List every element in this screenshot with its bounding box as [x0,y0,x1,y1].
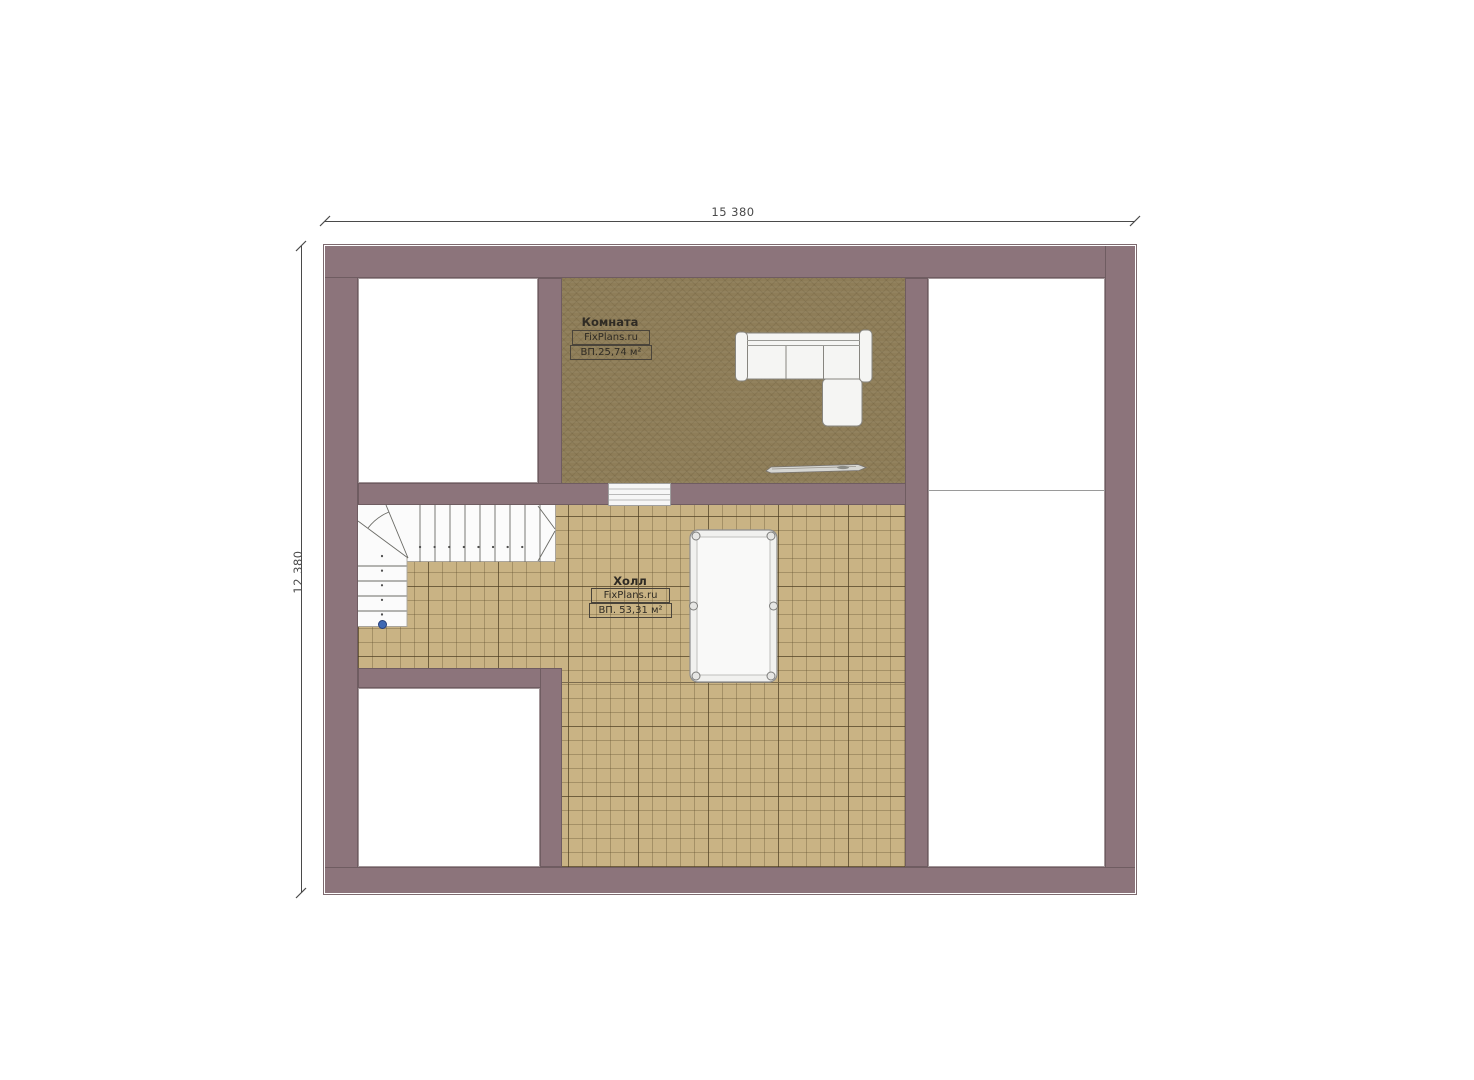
door-threshold [608,483,671,506]
exterior-wall-left [325,246,358,893]
holl-title: Холл [580,574,680,588]
attic-kneewall-line [562,682,905,683]
interior-wall-komnata-left [538,278,562,484]
right-column-divider [928,490,1105,491]
exterior-wall-bottom [325,867,1135,893]
dimension-left-label: 12 380 [291,542,305,602]
floor-plan-canvas: 15 380 12 380 [0,0,1474,1080]
interior-wall-bottomroom-top [358,668,562,688]
dimension-top-label: 15 380 [703,205,763,219]
room-right-column [928,278,1105,867]
room-top-left [358,278,538,483]
interior-wall-bottomroom-right [540,668,562,867]
komnata-floor [562,278,905,483]
komnata-area-box: ВП.25,74 м² [570,345,652,360]
staircase-run-vertical [358,505,407,627]
holl-brand-box: FixPlans.ru [591,588,670,603]
komnata-brand-box: FixPlans.ru [572,330,650,345]
interior-wall-right-column [905,278,928,867]
room-bottom-left [358,688,540,867]
holl-area-box: ВП. 53,31 м² [589,603,672,618]
exterior-wall-right [1105,246,1135,893]
komnata-title: Комната [560,315,660,329]
dimension-line-top [325,221,1135,222]
exterior-wall-top [325,246,1135,278]
